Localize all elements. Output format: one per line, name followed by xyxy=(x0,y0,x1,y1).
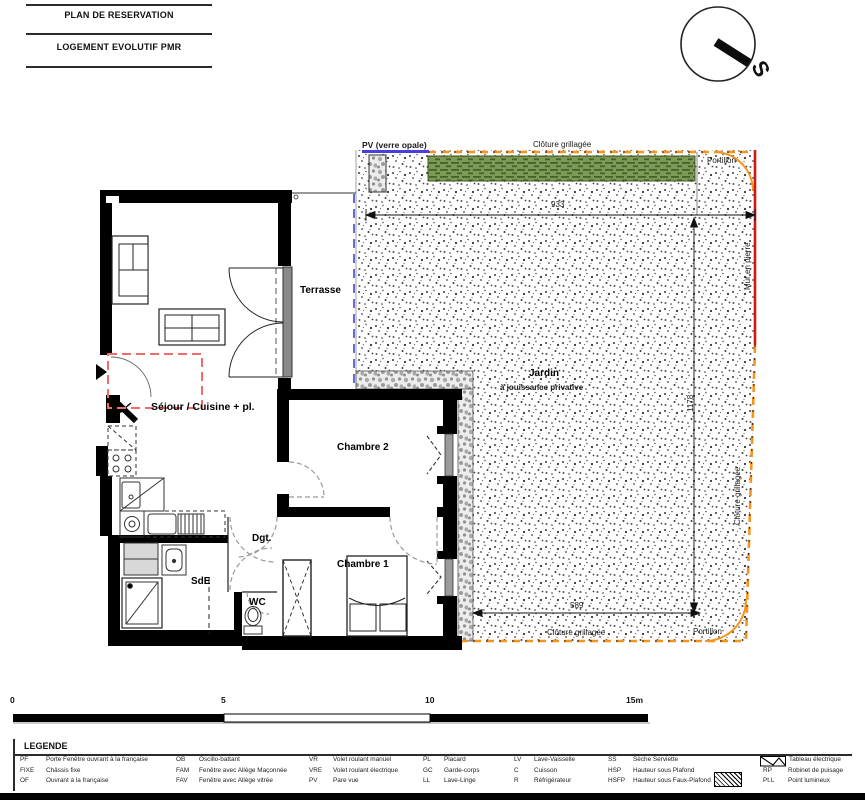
fence-top-label: Clôture grillagée xyxy=(533,140,591,149)
legend-col-5: LVLave-Vaisselle CCuisson RRéfrigérateur xyxy=(514,755,575,787)
jardin-sub-label: à jouissance privative xyxy=(500,383,583,392)
room-chambre1-label: Chambre 1 xyxy=(337,559,389,570)
legend-col-1: PFPorte Fenêtre ouvrant à la française F… xyxy=(20,755,148,787)
dim-right-value: 1178 xyxy=(686,395,695,412)
room-sejour-label: Séjour / Cuisine + pl. xyxy=(151,401,255,413)
room-terrasse-label: Terrasse xyxy=(300,285,341,296)
room-wc-label: WC xyxy=(249,597,266,608)
legend-col-2: OBOscillo-battant FAMFenêtre avec Allège… xyxy=(176,755,287,787)
legend-col-7: Tableau électrique RPRobinet de puisage … xyxy=(763,755,843,787)
hedge-strip xyxy=(428,156,695,181)
french-window xyxy=(229,267,292,377)
gate-bottom-label: Portillon xyxy=(693,627,722,636)
page-bottom-bar xyxy=(0,793,865,800)
scale-tick-10: 10 xyxy=(425,695,434,705)
pv-label: PV (verre opale) xyxy=(362,140,427,150)
dim-bottom-value: 589 xyxy=(570,601,583,610)
scale-tick-5: 5 xyxy=(221,695,226,705)
fence-bottom-label: Clôture grillagée xyxy=(547,628,605,637)
legend-title: LEGENDE xyxy=(24,741,68,751)
floor-plan-drawing xyxy=(0,0,865,800)
room-sde-label: SdE xyxy=(191,576,210,587)
legend-col-3: VRVolet roulant manuel VREVolet roulant … xyxy=(309,755,398,787)
floor-plan-page: { "header": { "title_line1": "PLAN DE RE… xyxy=(0,0,865,800)
legend-col-6: SSSèche Serviette HSPHauteur sous Plafon… xyxy=(608,755,711,787)
pv-underline xyxy=(362,150,429,153)
stone-wall-label: Mur en pierre xyxy=(743,242,752,290)
evolutive-zone-outline xyxy=(108,354,202,408)
room-jardin-label: Jardin xyxy=(529,368,559,379)
fence-right-label: Clôture grillagée xyxy=(733,467,742,525)
legend-left-rule xyxy=(13,739,15,791)
hsfp-hatch-icon xyxy=(714,772,742,787)
pv-opal-glass-screen xyxy=(369,155,386,192)
entry-door xyxy=(96,357,151,421)
kitchen-fixtures xyxy=(108,426,225,537)
scale-tick-15: 15m xyxy=(626,695,643,705)
room-chambre2-label: Chambre 2 xyxy=(337,442,389,453)
dim-top-value: 933 xyxy=(551,200,564,209)
scale-bar xyxy=(0,712,660,726)
gate-top-label: Portillon xyxy=(707,156,736,165)
scale-tick-0: 0 xyxy=(10,695,15,705)
room-dgt-label: Dgt. xyxy=(252,533,271,544)
sofas xyxy=(112,236,225,345)
legend-col-4: PLPlacard GCGarde-corps LLLave-Linge xyxy=(423,755,480,787)
